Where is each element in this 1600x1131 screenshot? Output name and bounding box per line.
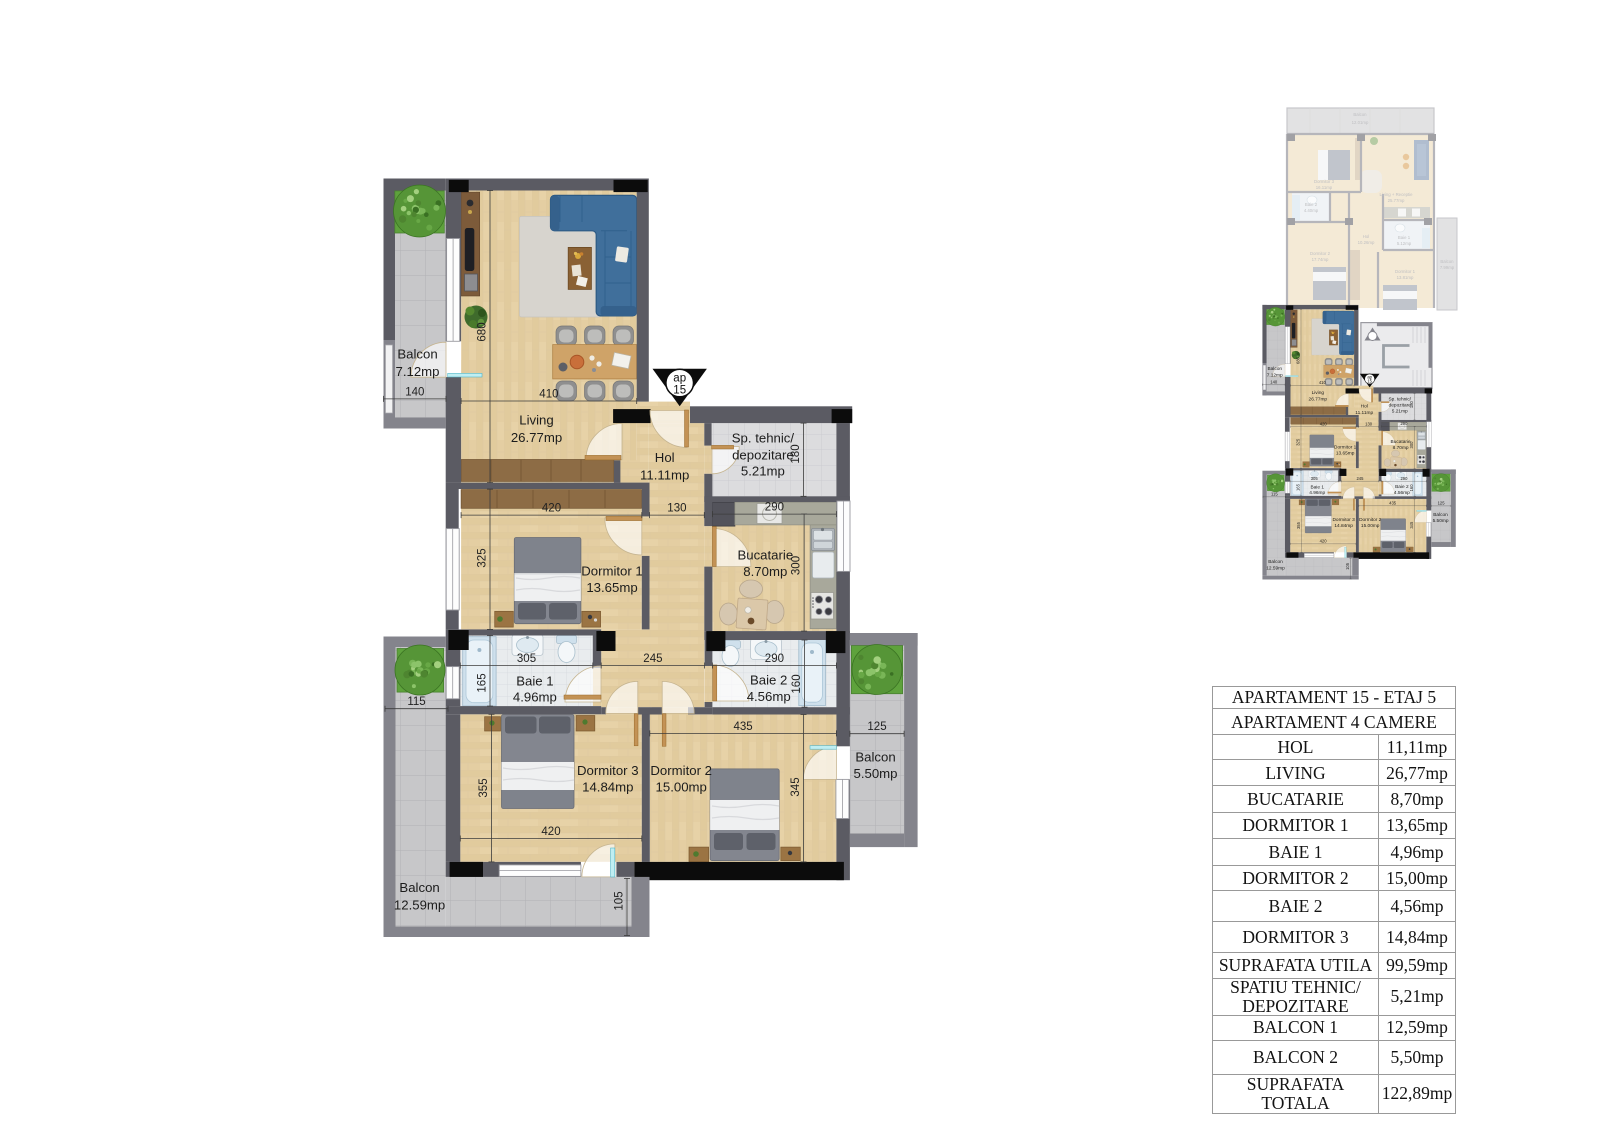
- svg-text:11.11mp: 11.11mp: [640, 468, 689, 483]
- svg-text:325: 325: [477, 548, 489, 567]
- svg-text:125: 125: [867, 721, 886, 733]
- svg-text:165: 165: [477, 673, 489, 692]
- svg-text:Living: Living: [519, 413, 553, 428]
- svg-text:140: 140: [405, 386, 424, 398]
- svg-text:420: 420: [542, 503, 561, 515]
- svg-text:245: 245: [643, 653, 662, 665]
- svg-text:345: 345: [790, 777, 802, 796]
- svg-text:Bucatarie: Bucatarie: [737, 548, 793, 563]
- svg-text:115: 115: [407, 696, 425, 708]
- svg-text:105: 105: [614, 891, 626, 910]
- svg-text:8.70mp: 8.70mp: [743, 564, 787, 579]
- svg-text:420: 420: [541, 826, 560, 838]
- svg-text:Balcon: Balcon: [397, 347, 437, 362]
- svg-text:Dormitor 2: Dormitor 2: [650, 763, 712, 778]
- svg-text:Dormitor 1: Dormitor 1: [581, 564, 643, 579]
- svg-text:depozitare: depozitare: [732, 448, 794, 463]
- svg-text:4.56mp: 4.56mp: [747, 689, 791, 704]
- svg-text:5.50mp: 5.50mp: [854, 766, 898, 781]
- svg-text:Baie 2: Baie 2: [750, 673, 787, 688]
- svg-text:15: 15: [673, 385, 686, 397]
- svg-text:290: 290: [765, 502, 784, 514]
- svg-text:355: 355: [478, 778, 490, 797]
- svg-text:Baie 1: Baie 1: [516, 674, 553, 689]
- svg-text:14.84mp: 14.84mp: [582, 780, 633, 795]
- svg-text:ap: ap: [673, 373, 686, 385]
- svg-text:680: 680: [477, 322, 489, 341]
- svg-text:Sp. tehnic/: Sp. tehnic/: [732, 431, 795, 446]
- svg-text:Balcon: Balcon: [855, 750, 895, 765]
- svg-text:26.77mp: 26.77mp: [511, 430, 562, 445]
- svg-text:305: 305: [517, 653, 536, 665]
- svg-text:160: 160: [791, 674, 803, 693]
- svg-text:410: 410: [539, 389, 558, 401]
- svg-text:435: 435: [734, 721, 753, 733]
- svg-text:4.96mp: 4.96mp: [513, 690, 557, 705]
- svg-text:290: 290: [765, 653, 784, 665]
- svg-text:5.21mp: 5.21mp: [741, 464, 785, 479]
- svg-text:Dormitor 3: Dormitor 3: [577, 763, 639, 778]
- svg-text:15.00mp: 15.00mp: [656, 780, 707, 795]
- svg-text:130: 130: [667, 503, 686, 515]
- svg-text:Balcon: Balcon: [399, 880, 439, 895]
- svg-text:Hol: Hol: [655, 450, 675, 465]
- svg-text:7.12mp: 7.12mp: [396, 364, 440, 379]
- svg-text:13.65mp: 13.65mp: [586, 580, 637, 595]
- svg-text:12.59mp: 12.59mp: [394, 898, 445, 913]
